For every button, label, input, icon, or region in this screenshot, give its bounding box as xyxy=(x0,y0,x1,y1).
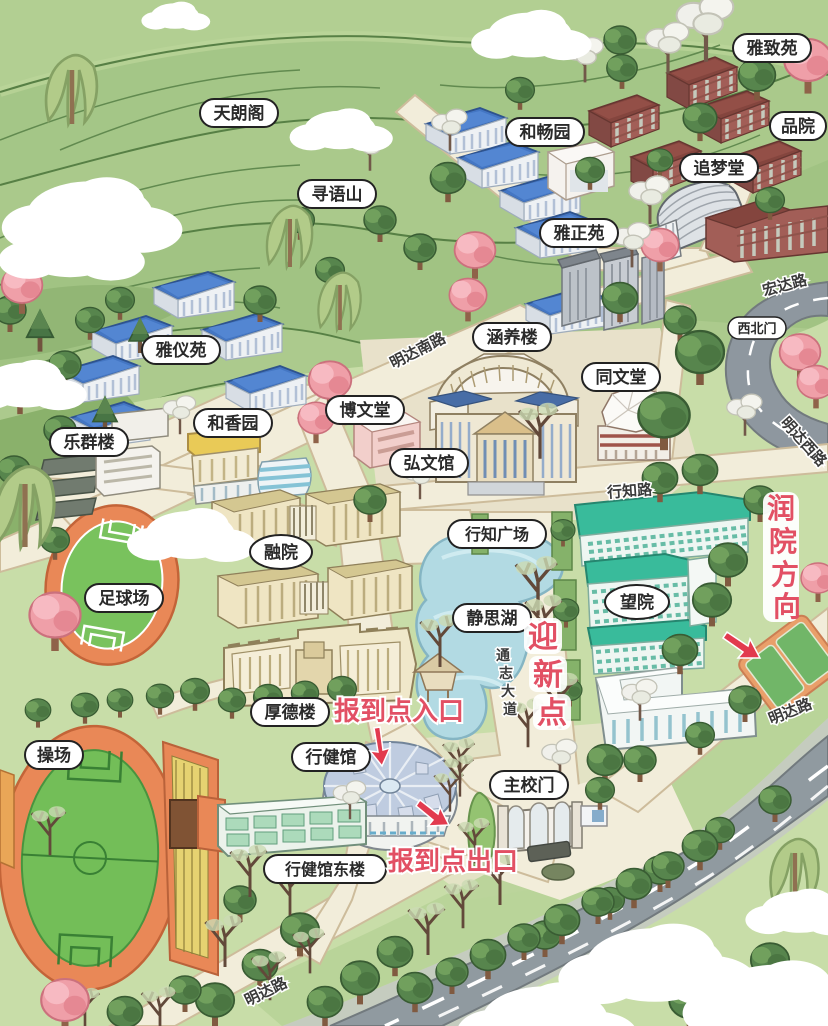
svg-text:通: 通 xyxy=(496,647,510,663)
svg-text:雅正苑: 雅正苑 xyxy=(553,223,605,243)
svg-text:行知路: 行知路 xyxy=(606,480,654,501)
svg-text:追梦堂: 追梦堂 xyxy=(694,158,745,178)
svg-text:天朗阁: 天朗阁 xyxy=(214,103,265,123)
svg-text:报到点出口: 报到点出口 xyxy=(388,846,518,876)
svg-text:融院: 融院 xyxy=(264,542,298,562)
svg-text:品院: 品院 xyxy=(781,116,815,136)
svg-text:迎: 迎 xyxy=(528,621,558,654)
svg-text:望院: 望院 xyxy=(620,592,654,612)
svg-text:静思湖: 静思湖 xyxy=(467,608,518,628)
svg-text:新: 新 xyxy=(533,659,563,692)
svg-text:报到点入口: 报到点入口 xyxy=(334,696,464,726)
svg-text:足球场: 足球场 xyxy=(99,589,150,608)
svg-text:弘文馆: 弘文馆 xyxy=(404,453,455,473)
svg-text:涵养楼: 涵养楼 xyxy=(487,327,538,347)
svg-text:点: 点 xyxy=(537,697,567,730)
svg-text:道: 道 xyxy=(503,701,517,717)
svg-text:同文堂: 同文堂 xyxy=(596,367,647,387)
svg-text:主校门: 主校门 xyxy=(504,775,555,795)
svg-text:行知广场: 行知广场 xyxy=(464,525,529,544)
svg-text:行健馆东楼: 行健馆东楼 xyxy=(284,860,365,879)
svg-text:润: 润 xyxy=(767,492,795,524)
svg-text:乐群楼: 乐群楼 xyxy=(64,432,115,452)
svg-text:厚德楼: 厚德楼 xyxy=(265,702,316,722)
svg-text:西北门: 西北门 xyxy=(737,321,776,336)
svg-text:博文堂: 博文堂 xyxy=(340,400,391,420)
svg-text:和香园: 和香园 xyxy=(208,414,259,433)
svg-text:和畅园: 和畅园 xyxy=(520,122,571,142)
svg-text:操场: 操场 xyxy=(37,745,71,765)
svg-text:向: 向 xyxy=(773,591,801,622)
svg-text:寻语山: 寻语山 xyxy=(312,185,363,204)
svg-text:大: 大 xyxy=(501,683,515,699)
svg-text:院: 院 xyxy=(769,525,797,557)
svg-text:行健馆: 行健馆 xyxy=(305,747,357,767)
svg-text:雅仪苑: 雅仪苑 xyxy=(155,340,207,360)
svg-text:雅致苑: 雅致苑 xyxy=(746,38,798,58)
svg-text:志: 志 xyxy=(499,665,513,681)
svg-text:方: 方 xyxy=(771,558,799,590)
